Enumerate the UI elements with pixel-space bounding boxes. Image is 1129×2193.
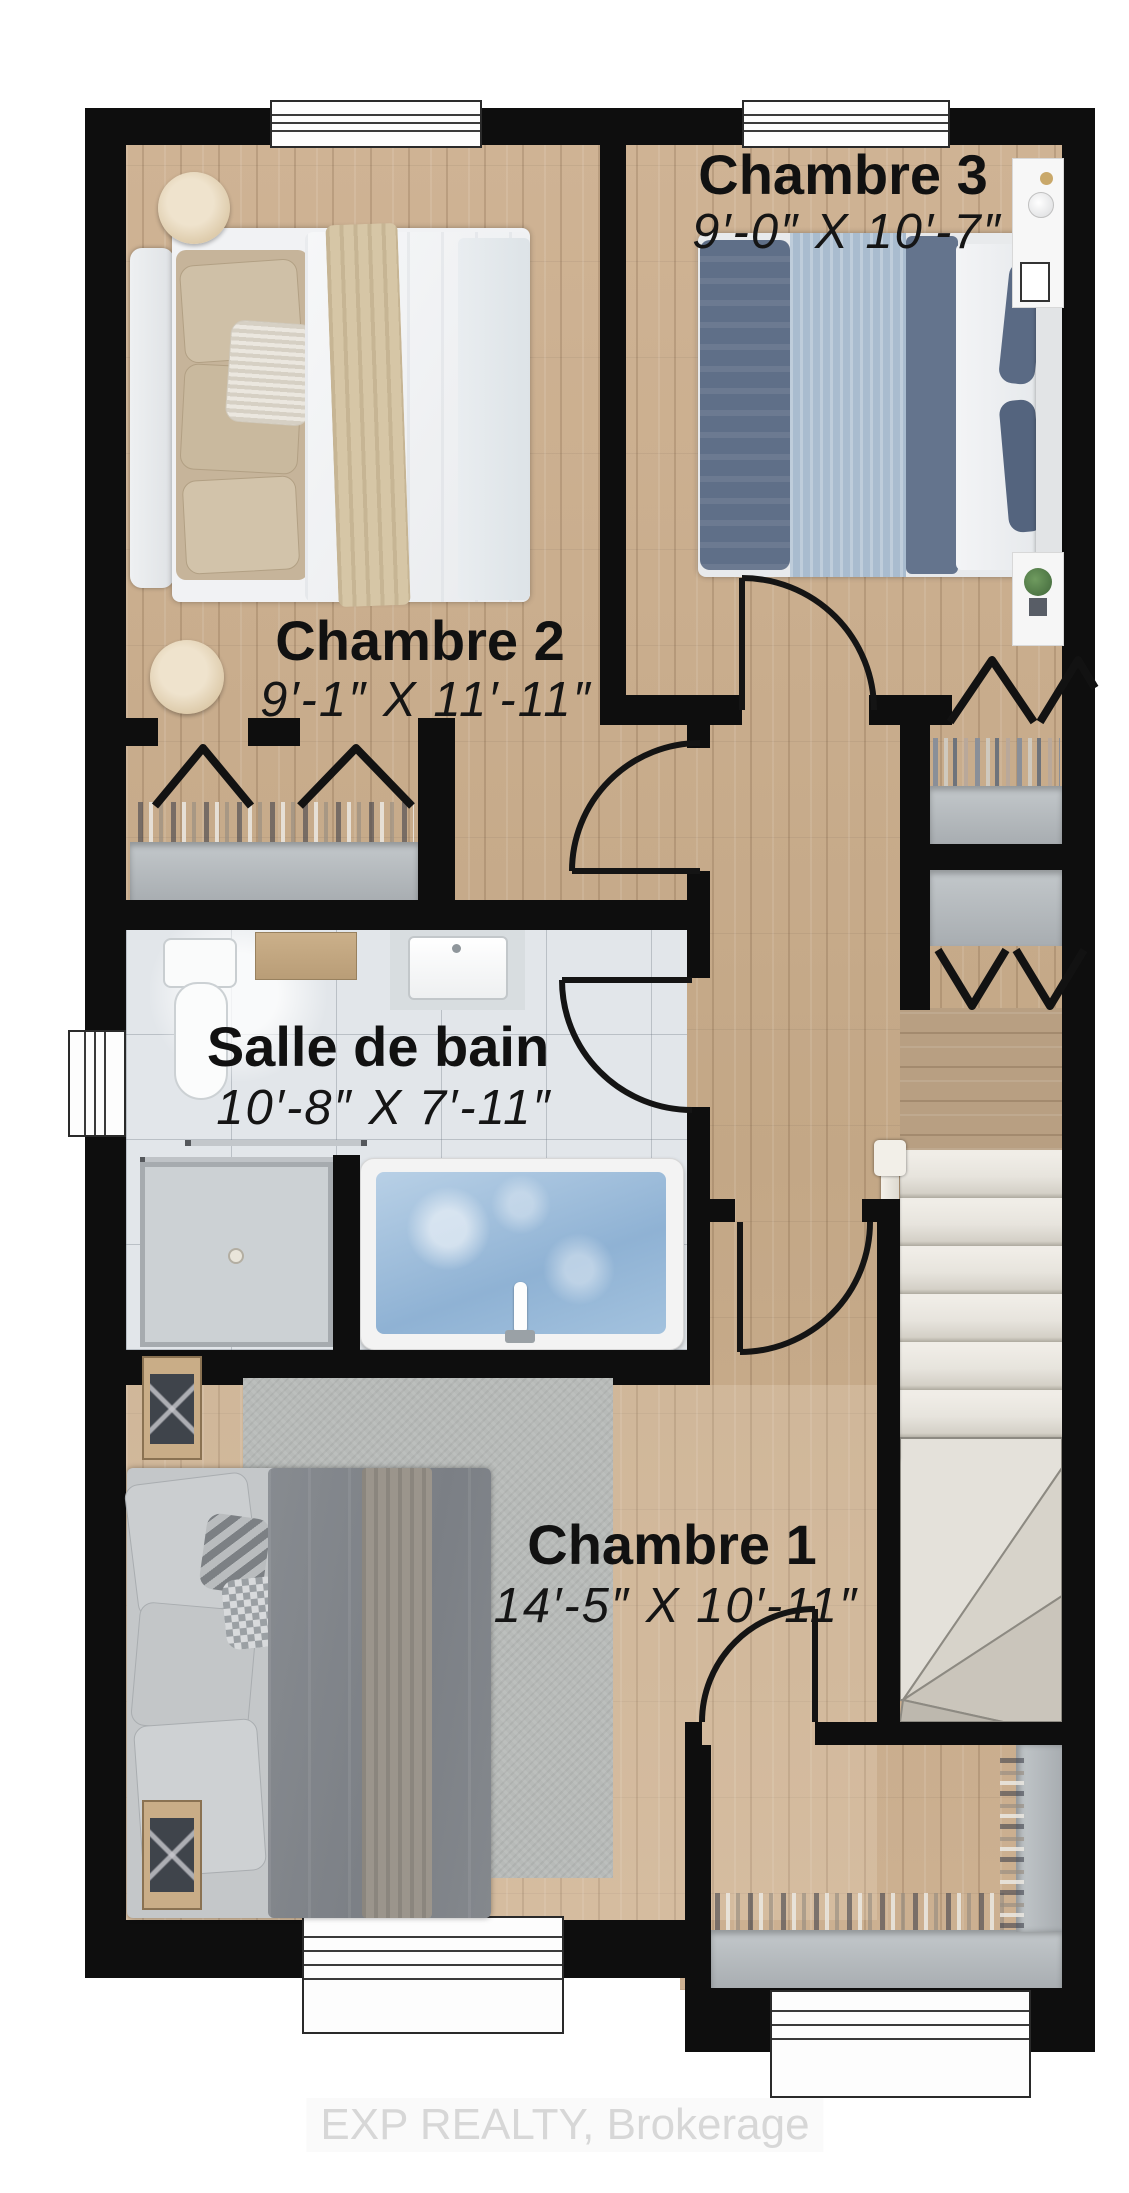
stair-tread <box>900 1198 1062 1246</box>
window-chambre3 <box>742 100 950 148</box>
closet-shelf <box>930 786 1062 844</box>
window-walkin-closet <box>770 1990 1031 2098</box>
walkin-closet-shelf <box>711 1930 1062 1990</box>
decor-dot <box>1040 172 1053 185</box>
bench-top <box>150 1818 194 1892</box>
round-pouf <box>158 172 230 244</box>
wall-walkin-north-b <box>815 1722 1075 1745</box>
shower-drain <box>228 1248 244 1264</box>
closet-shoes <box>138 802 414 844</box>
plant-pot <box>1029 598 1047 616</box>
wall-ch3-south <box>600 695 742 725</box>
table-lamp <box>1028 192 1054 218</box>
bed-chambre3-knit-throw <box>790 233 906 577</box>
wall-bath-north <box>126 900 710 930</box>
wall-ch2-closet-side <box>418 718 455 930</box>
window-chambre2 <box>270 100 482 148</box>
wall-ch2-closet-stub <box>126 718 158 746</box>
walkin-closet-shoes <box>715 1893 1011 1933</box>
bed-chambre2-headboard <box>130 248 174 588</box>
plant <box>1024 568 1052 596</box>
closet-shelf <box>130 842 418 902</box>
wall-ch1-door-stub <box>862 1199 877 1222</box>
wall-bath-east <box>687 1107 710 1350</box>
knit-pillow <box>225 319 316 427</box>
bedside-table-top <box>150 1374 194 1444</box>
wall-shower-tub-divider <box>333 1155 360 1350</box>
walkin-closet-shoes-column <box>1000 1752 1024 1928</box>
exterior-wall-right <box>1062 108 1095 2052</box>
staircase <box>900 1150 1062 1438</box>
vanity-cabinet <box>255 932 357 980</box>
brokerage-watermark: EXP REALTY, Brokerage <box>306 2098 823 2152</box>
room-dims-chambre3: 9′-0″ X 10′-7″ <box>692 204 1002 260</box>
room-label-chambre3: Chambre 3 <box>698 142 987 207</box>
wall-closet-band <box>900 844 1062 870</box>
picture-frame <box>1020 262 1050 302</box>
stair-landing-floor <box>900 1008 1062 1150</box>
window-chambre1 <box>302 1916 564 2034</box>
wall-ch1-door-stub <box>710 1199 735 1222</box>
hanging-clothes <box>933 738 1060 788</box>
room-dims-salle-de-bain: 10′-8″ X 7′-11″ <box>216 1080 551 1136</box>
room-label-chambre1: Chambre 1 <box>527 1512 816 1577</box>
stair-tread <box>900 1294 1062 1342</box>
room-label-chambre2: Chambre 2 <box>275 608 564 673</box>
shower-glass-door <box>185 1140 367 1146</box>
wall-closet-stub <box>930 695 952 725</box>
wall-stairwell <box>877 1199 900 1745</box>
newel-post <box>874 1140 906 1176</box>
wall-walkin-north-a <box>685 1722 702 1745</box>
round-pouf <box>150 640 224 714</box>
room-dims-chambre1: 14′-5″ X 10′-11″ <box>494 1578 859 1634</box>
pillow <box>182 475 301 575</box>
toilet <box>163 938 237 988</box>
bed-chambre3-duvet-fold <box>906 236 958 574</box>
wall-ch2-ch3-divider <box>600 145 626 695</box>
room-dims-chambre2: 9′-1″ X 11′-11″ <box>260 672 592 728</box>
window-bathroom <box>68 1030 126 1137</box>
shower-glass-rail <box>140 1157 350 1162</box>
foot-blanket <box>458 238 530 600</box>
bathtub-faucet-base <box>505 1330 535 1343</box>
beige-throw <box>325 223 410 607</box>
bathtub-faucet <box>514 1282 527 1334</box>
stair-tread <box>900 1390 1062 1438</box>
stair-tread <box>900 1246 1062 1294</box>
wall-hall-stub <box>687 722 710 748</box>
stair-tread <box>900 1342 1062 1390</box>
bed-chambre3-foot-cushion <box>700 240 790 570</box>
throw-blanket <box>362 1468 432 1918</box>
linen-closet-shelf <box>930 870 1062 946</box>
stair-tread <box>900 1150 1062 1198</box>
room-label-salle-de-bain: Salle de bain <box>207 1014 549 1079</box>
floor-plan: Chambre 3 9′-0″ X 10′-7″ Chambre 2 9′-1″… <box>0 0 1129 2193</box>
sink-faucet <box>452 944 461 953</box>
